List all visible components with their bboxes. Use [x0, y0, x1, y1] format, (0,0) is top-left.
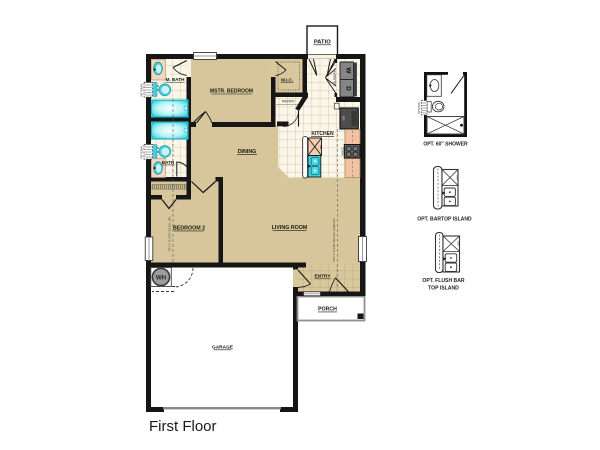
svg-text:MSTR. BEDROOM: MSTR. BEDROOM — [210, 89, 253, 95]
svg-text:W.I.C.: W.I.C. — [281, 78, 294, 83]
svg-text:WH: WH — [156, 274, 167, 281]
svg-text:OPTIONAL: OPTIONAL — [140, 83, 144, 97]
svg-text:OPT. 60" SHOWER: OPT. 60" SHOWER — [423, 141, 468, 147]
svg-text:TOP ISLAND: TOP ISLAND — [428, 286, 459, 292]
svg-text:BATH: BATH — [162, 160, 175, 165]
svg-text:D: D — [345, 86, 352, 91]
svg-text:W: W — [345, 67, 352, 74]
svg-text:OPT. 2' SLOPE CEILING. WH: OPT. 2' SLOPE CEILING. WH — [168, 217, 172, 252]
svg-text:OPTIONAL: OPTIONAL — [140, 145, 144, 159]
svg-text:OPT. FLUSH BAR: OPT. FLUSH BAR — [422, 278, 464, 284]
svg-text:OPT. 2' SLOPE CEILING. LA/DR W: OPT. 2' SLOPE CEILING. LA/DR WH — [332, 218, 336, 261]
svg-text:RANGE: RANGE — [342, 147, 345, 156]
svg-text:DW: DW — [457, 241, 461, 246]
svg-text:First Floor: First Floor — [149, 418, 217, 435]
svg-text:PANTRY: PANTRY — [282, 100, 296, 104]
svg-text:M. BATH: M. BATH — [166, 77, 185, 82]
svg-text:OPTIONAL: OPTIONAL — [418, 101, 421, 114]
svg-text:REF.: REF. — [342, 116, 346, 122]
svg-text:OPT. BARTOP ISLAND: OPT. BARTOP ISLAND — [417, 217, 472, 223]
svg-text:LAUNDRY: LAUNDRY — [333, 70, 337, 86]
svg-text:DW: DW — [455, 175, 459, 180]
svg-text:DW: DW — [319, 145, 323, 150]
